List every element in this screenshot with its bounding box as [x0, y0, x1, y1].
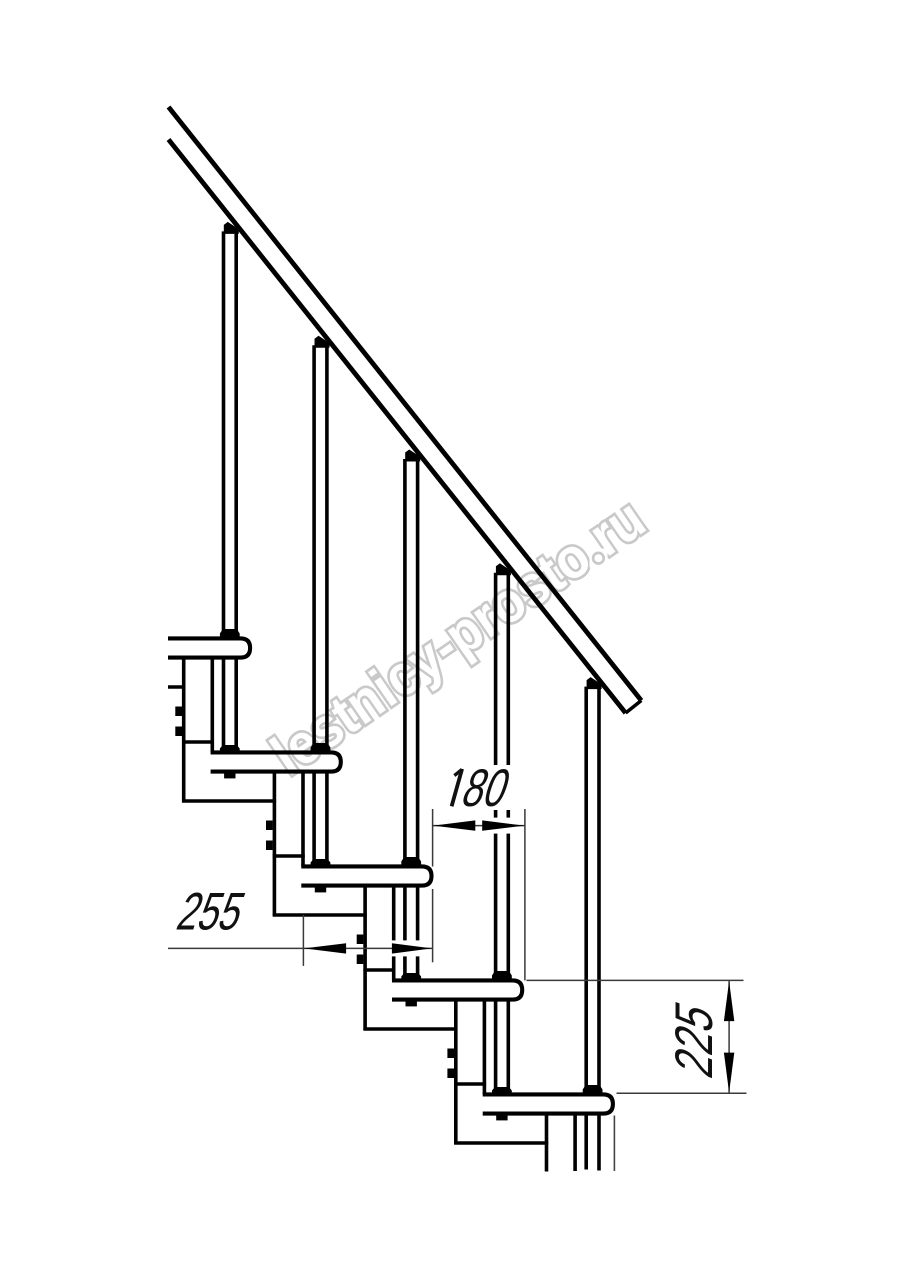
svg-text:lestnicy-prosto.ru: lestnicy-prosto.ru — [260, 486, 656, 787]
svg-text:225: 225 — [665, 995, 724, 1085]
svg-text:255: 255 — [171, 882, 252, 941]
